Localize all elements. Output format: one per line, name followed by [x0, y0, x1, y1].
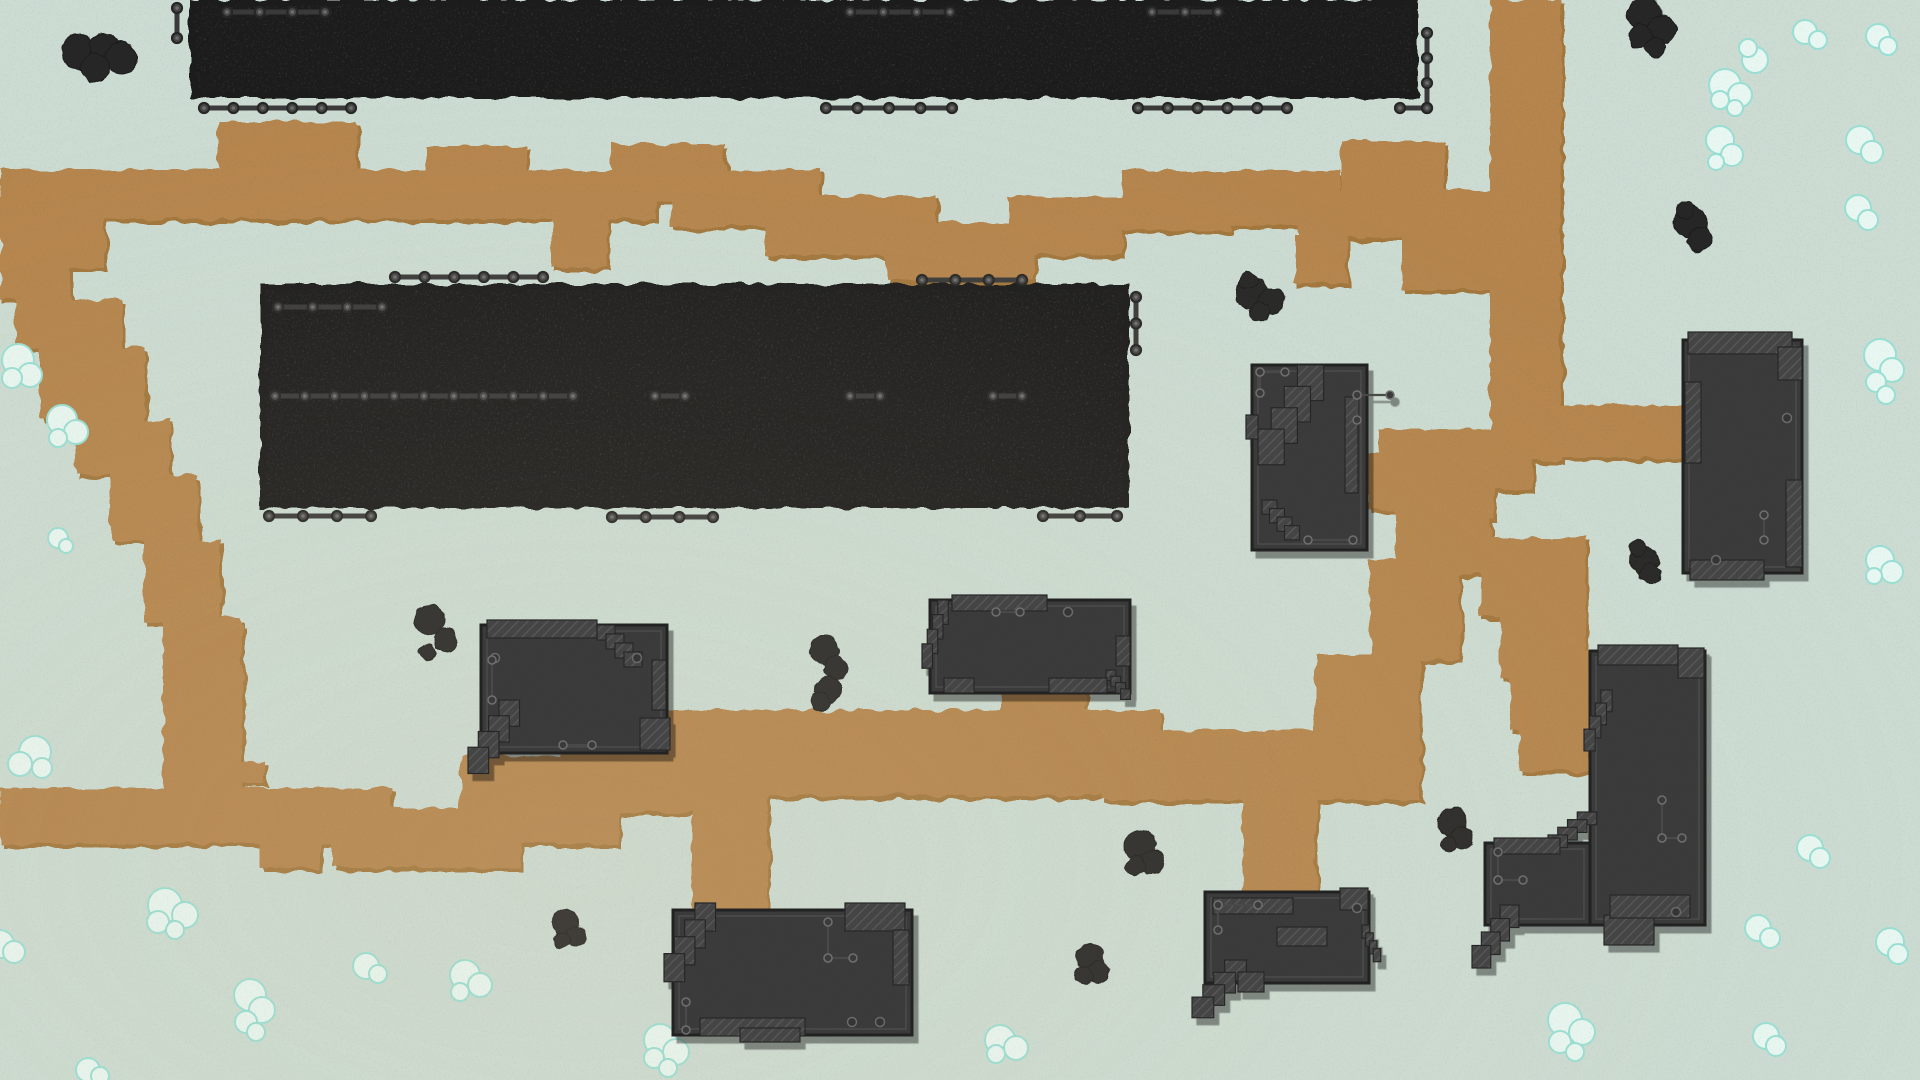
film-grain-overlay [0, 0, 1920, 1080]
game-viewport[interactable] [0, 0, 1920, 1080]
game-map-canvas[interactable] [0, 0, 1920, 1080]
